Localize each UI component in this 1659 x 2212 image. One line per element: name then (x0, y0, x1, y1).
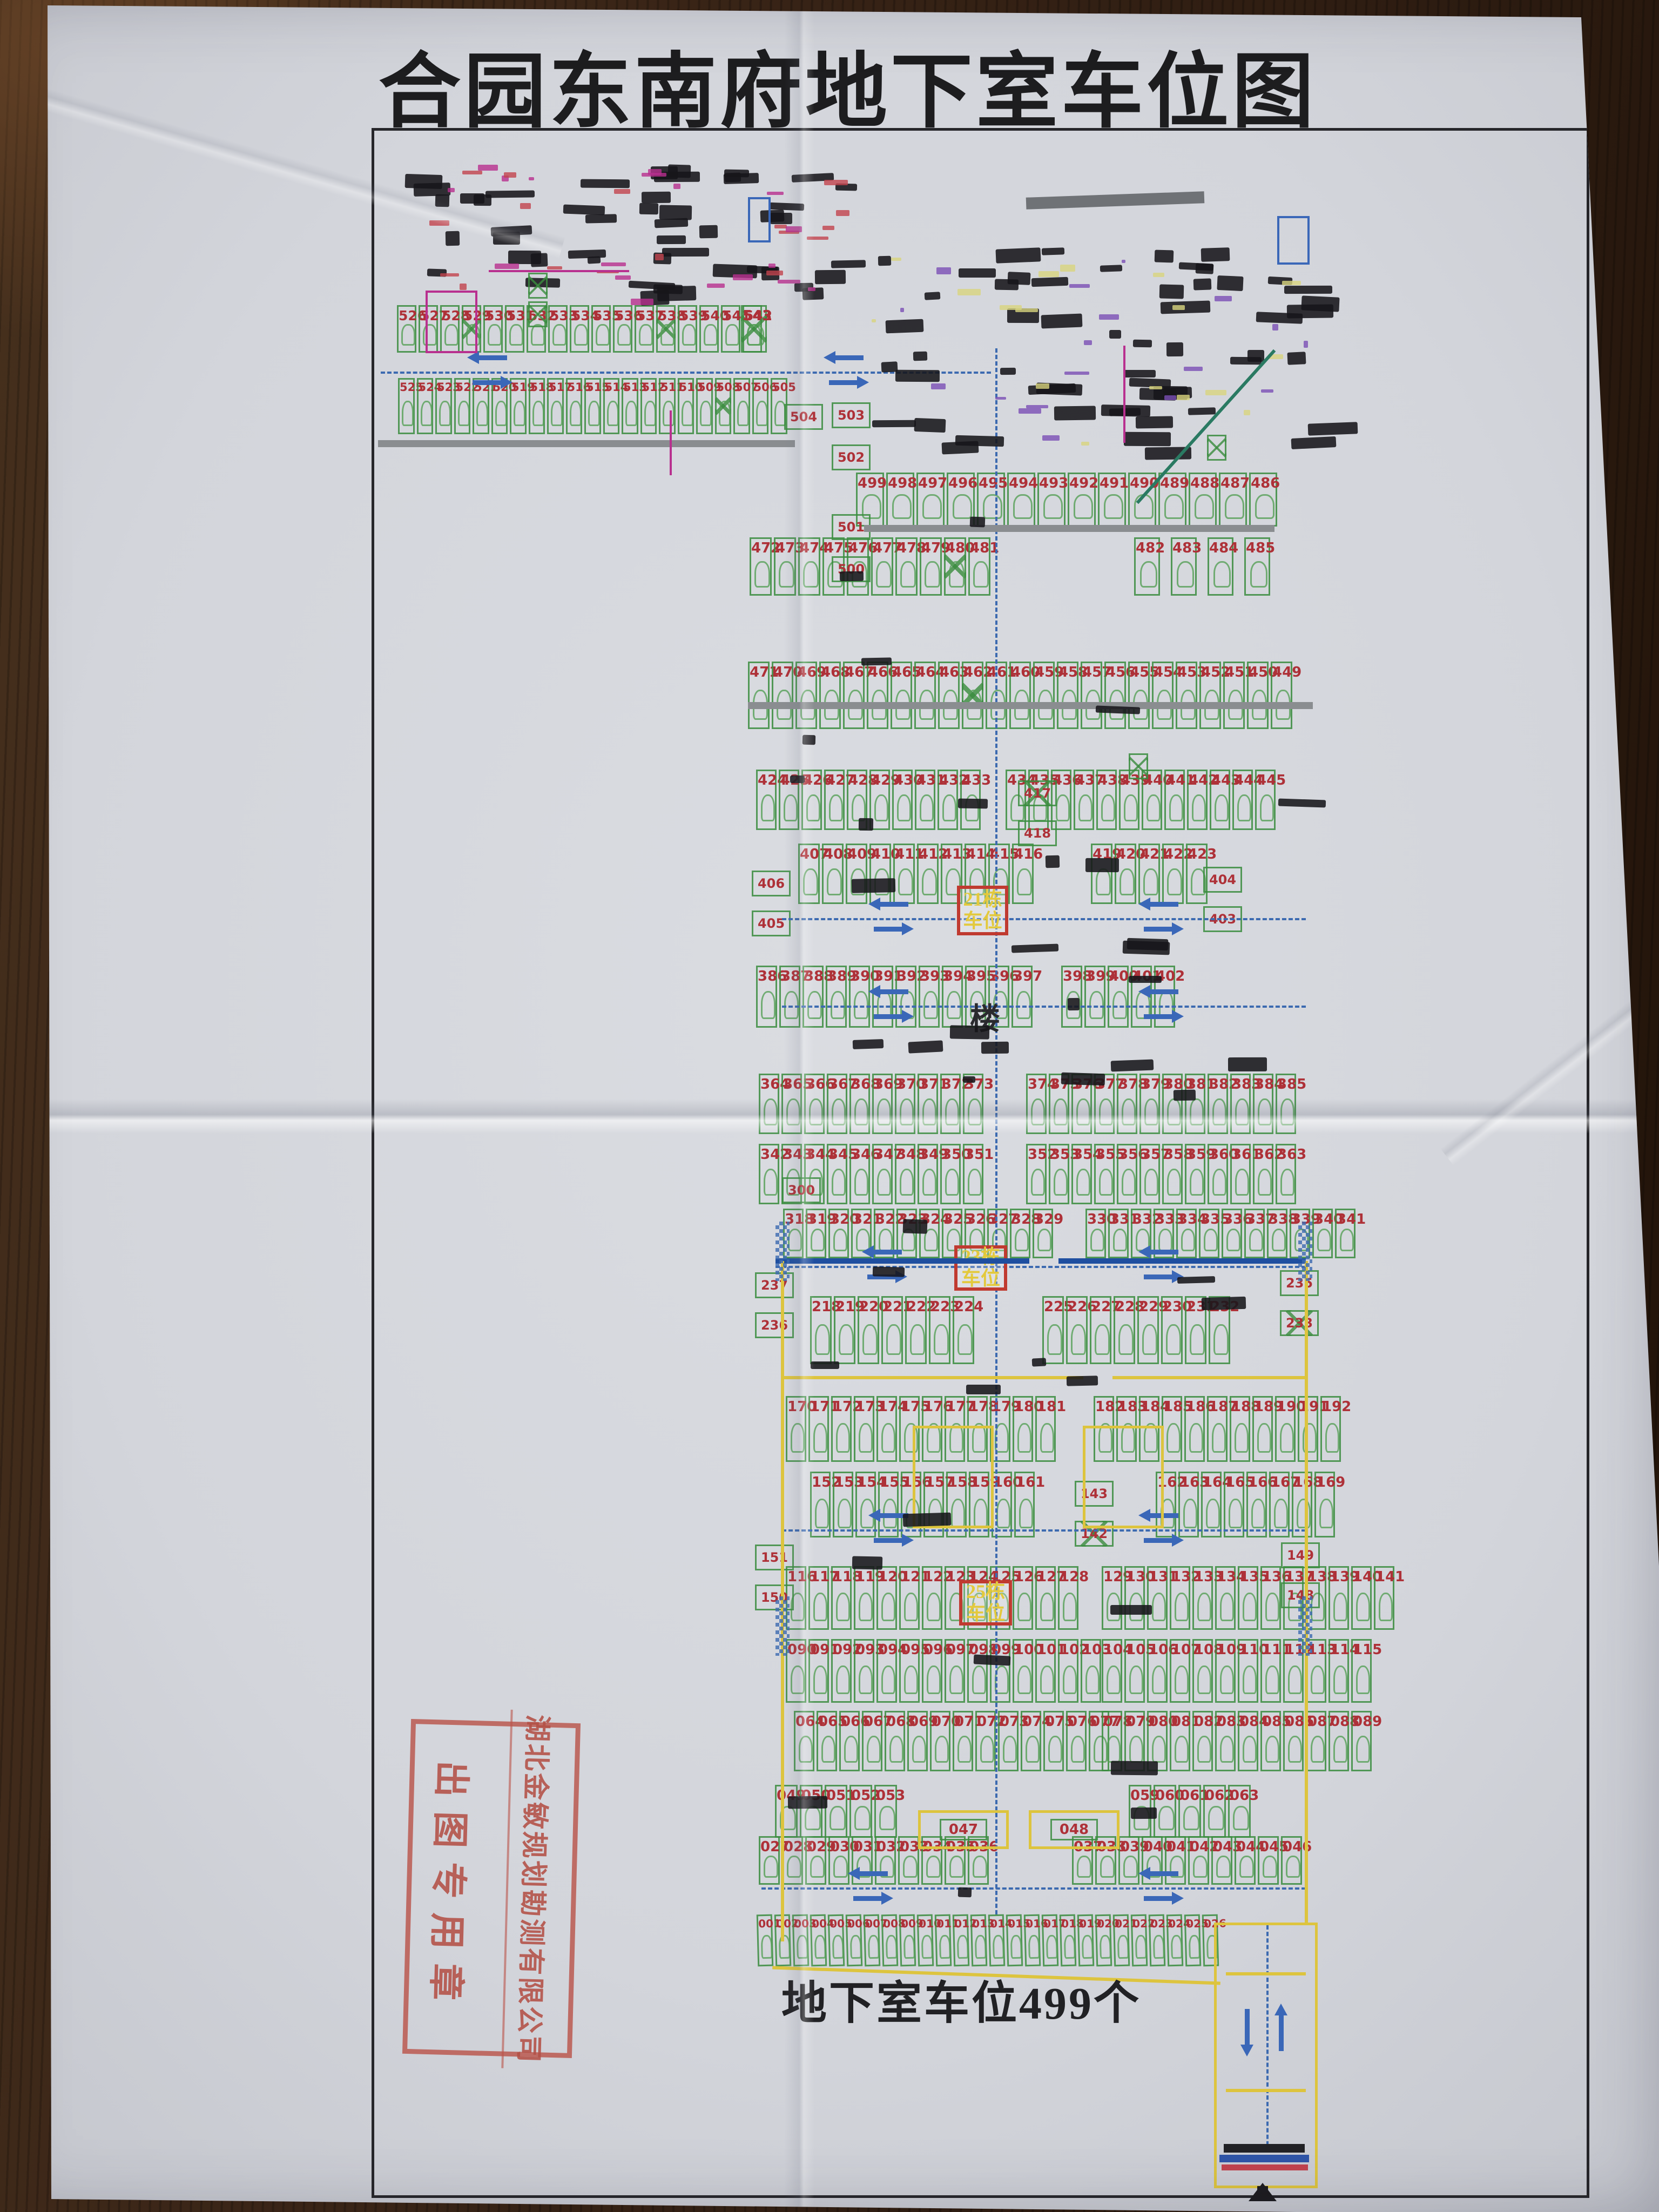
parking-stall: 028 (782, 1836, 803, 1885)
car-icon (1333, 1593, 1347, 1621)
annotation-tick (1060, 265, 1075, 272)
annotation-blob (814, 269, 846, 284)
stall-number: 095 (901, 1643, 918, 1657)
annotation-blob (1228, 1057, 1267, 1071)
car-icon (786, 1098, 800, 1126)
car-icon (1190, 1324, 1205, 1354)
parking-stall: 033 (898, 1836, 919, 1885)
car-icon (854, 1806, 870, 1830)
parking-stall: 422 (1162, 844, 1184, 904)
parking-stall: 008 (881, 1914, 899, 1967)
stall-number: 378 (1118, 1077, 1136, 1091)
car-icon (1071, 1736, 1085, 1763)
annotation-tick (478, 165, 498, 171)
car-icon (945, 1098, 959, 1126)
stall-number: 136 (1262, 1570, 1279, 1584)
car-icon (806, 794, 820, 822)
parking-stall: 405 (752, 911, 791, 936)
parking-stall: 488 (1189, 473, 1217, 527)
parking-stall: 531 (505, 305, 524, 353)
car-icon (1100, 1856, 1115, 1878)
parking-stall: 029 (805, 1836, 826, 1885)
stall-number: 384 (1255, 1077, 1272, 1091)
car-icon (912, 1736, 926, 1763)
parking-stall: 470 (772, 662, 793, 729)
parking-stall: 050 (800, 1785, 822, 1838)
stall-number: 129 (1103, 1570, 1121, 1584)
parking-stall: 108 (1192, 1639, 1213, 1703)
stall-number: 480 (946, 541, 965, 555)
stall-number: 032 (876, 1840, 894, 1854)
car-icon (476, 401, 488, 426)
stall-number: 479 (921, 541, 940, 555)
parking-stall: 365 (781, 1074, 802, 1134)
stall-number: 416 (1014, 847, 1032, 861)
stall-number: 018 (1061, 1918, 1074, 1930)
stall-number: 509 (698, 382, 711, 393)
parking-stall: 417 (1018, 780, 1057, 806)
magenta-line (1123, 346, 1125, 443)
car-icon (1107, 1665, 1121, 1694)
stall-number: 040 (1143, 1840, 1161, 1854)
car-icon (1206, 1499, 1220, 1528)
stall-number: 350 (942, 1148, 959, 1162)
stall-number: 369 (874, 1077, 891, 1091)
parking-stall: 345 (827, 1144, 847, 1204)
stall-number: 182 (1095, 1400, 1112, 1414)
car-icon (1099, 1098, 1113, 1126)
parking-stall: 017 (1042, 1914, 1059, 1967)
annotation-tick (872, 319, 875, 322)
lobby-box: 048 (1029, 1810, 1120, 1849)
stall-number: 518 (530, 382, 544, 393)
annotation-blob (1133, 340, 1152, 347)
car-icon (957, 1736, 972, 1763)
parking-stall: 407 (798, 844, 820, 904)
stall-number: 020 (1097, 1918, 1110, 1930)
parking-stall: 431 (915, 770, 935, 830)
parking-stall: 541 (721, 305, 740, 353)
car-icon (903, 1856, 918, 1878)
parking-stall: 094 (876, 1639, 897, 1703)
stall-number: 329 (1034, 1212, 1051, 1226)
stall-number: 046 (1283, 1840, 1300, 1854)
stall-number: 039 (1120, 1840, 1138, 1854)
car-icon (1356, 1665, 1370, 1694)
parking-stall: 226 (1066, 1296, 1088, 1364)
car-icon (1212, 1098, 1226, 1126)
stall-number: 414 (966, 847, 984, 861)
annotation-blob (1201, 1297, 1245, 1310)
stall-number: 227 (1091, 1300, 1110, 1314)
stall-number: 008 (883, 1918, 896, 1930)
stall-number: 332 (1132, 1212, 1150, 1226)
stall-number: 404 (1205, 873, 1240, 886)
stall-number: 229 (1139, 1300, 1157, 1314)
parking-stall: 104 (1102, 1639, 1122, 1703)
driving-lane (782, 1529, 1306, 1532)
car-icon (910, 1324, 925, 1354)
aisle-wall-line (775, 1258, 1029, 1264)
stall-number: 087 (1307, 1715, 1325, 1729)
car-icon (867, 1736, 881, 1763)
lane-arrow-icon (1144, 1871, 1178, 1876)
car-icon (700, 401, 712, 426)
parking-stall: 110 (1238, 1639, 1258, 1703)
parking-stall: 009 (899, 1914, 916, 1967)
car-icon (827, 868, 842, 896)
lane-arrow-icon (1144, 1538, 1178, 1543)
stall-number: 140 (1353, 1570, 1370, 1584)
car-icon (1171, 1935, 1183, 1959)
car-icon (922, 494, 941, 518)
parking-stall: 384 (1253, 1074, 1273, 1134)
parking-stall: 320 (828, 1209, 849, 1258)
car-icon (704, 324, 717, 346)
stall-number: 326 (966, 1212, 983, 1226)
car-icon (514, 401, 525, 426)
annotation-tick (462, 171, 482, 174)
car-icon (1189, 1935, 1201, 1959)
shaft-outline (748, 197, 771, 242)
parking-stall: 114 (1328, 1639, 1349, 1703)
car-icon (874, 794, 888, 822)
stall-number: 486 (1251, 476, 1276, 490)
lane-arrow-icon (874, 902, 908, 907)
parking-stall: 340 (1312, 1209, 1333, 1258)
stall-number: 116 (787, 1570, 805, 1584)
parking-stall: 355 (1094, 1144, 1115, 1204)
parking-stall: 357 (1139, 1144, 1160, 1204)
car-icon (942, 794, 956, 822)
stall-number: 506 (754, 382, 767, 393)
stall-number: 081 (1171, 1715, 1189, 1729)
parking-stall: 066 (839, 1711, 860, 1771)
car-icon (859, 1423, 873, 1453)
stall-number: 454 (1154, 665, 1172, 679)
parking-stall: 133 (1192, 1566, 1213, 1630)
car-icon (1043, 494, 1062, 518)
stall-number: 030 (830, 1840, 848, 1854)
parking-stall: 127 (1035, 1566, 1056, 1630)
parking-stall: 141 (1374, 1566, 1394, 1630)
car-icon (897, 794, 911, 822)
car-icon (764, 1856, 778, 1878)
parking-stall: 167 (1269, 1472, 1290, 1537)
stall-number: 090 (787, 1643, 805, 1657)
annotation-tick (520, 203, 531, 209)
car-icon (836, 1665, 850, 1694)
parking-stall: 014 (988, 1914, 1006, 1967)
car-icon (761, 991, 775, 1019)
stall-number: 071 (954, 1715, 972, 1729)
lane-arrow-icon (1144, 1014, 1178, 1019)
car-icon (1169, 794, 1183, 822)
parking-stall: 348 (895, 1144, 915, 1204)
car-icon (791, 1665, 805, 1694)
car-icon (1099, 1169, 1113, 1196)
stall-number: 127 (1037, 1570, 1054, 1584)
annotation-tick (778, 280, 800, 283)
parking-stall: 381 (1185, 1074, 1205, 1134)
car-icon (1166, 1324, 1181, 1354)
parking-stall: 185 (1162, 1396, 1182, 1462)
crossed-box (1129, 753, 1148, 779)
annotation-blob (958, 1887, 972, 1897)
annotation-tick (1042, 435, 1060, 441)
car-icon (975, 1935, 987, 1959)
stall-number: 515 (586, 382, 599, 393)
annotation-blob (485, 191, 535, 198)
stall-number: 469 (797, 665, 815, 679)
parking-stall: 052 (849, 1785, 872, 1838)
stall-number: 088 (1330, 1715, 1347, 1729)
parking-stall: 420 (1115, 844, 1136, 904)
car-icon (900, 1169, 914, 1196)
stall-number: 117 (810, 1570, 827, 1584)
stall-number: 067 (864, 1715, 881, 1729)
parking-stall: 219 (834, 1296, 855, 1364)
car-icon (1054, 1169, 1068, 1196)
stall-number: 471 (750, 665, 768, 679)
stall-number: 349 (919, 1148, 936, 1162)
annotation-tick (733, 274, 753, 280)
stall-number: 504 (786, 410, 821, 423)
lane-arrow-icon (874, 927, 908, 932)
stall-number: 085 (1262, 1715, 1279, 1729)
stall-number: 025 (1186, 1918, 1199, 1930)
stall-number: 352 (1028, 1148, 1045, 1162)
annotation-tick (429, 220, 449, 225)
parking-stall: 067 (862, 1711, 882, 1771)
stall-number: 437 (1075, 773, 1092, 787)
car-icon (949, 1856, 964, 1878)
lane-arrow-icon (1144, 1896, 1178, 1901)
car-icon (421, 401, 433, 426)
parking-stall: 480 (944, 537, 966, 596)
lane-arrow-icon (874, 1538, 908, 1543)
lane-arrow-icon (473, 380, 507, 385)
car-icon (879, 1806, 895, 1830)
stall-number: 086 (1285, 1715, 1302, 1729)
parking-stall: 015 (1006, 1914, 1023, 1967)
parking-stall: 136 (1260, 1566, 1281, 1630)
stall-number: 155 (880, 1475, 897, 1489)
stall-number: 024 (1168, 1918, 1181, 1930)
parking-stall: 233 (1280, 1310, 1319, 1336)
parking-stall: 331 (1108, 1209, 1129, 1258)
stall-number: 010 (919, 1918, 932, 1930)
car-icon (1117, 1935, 1129, 1959)
parking-stall: 102 (1058, 1639, 1078, 1703)
parking-stall: 149 (1281, 1542, 1320, 1568)
stall-number: 432 (939, 773, 956, 787)
stall-number: 531 (507, 309, 523, 322)
wall-line (748, 702, 1313, 709)
parking-stall: 071 (953, 1711, 973, 1771)
stall-number: 139 (1330, 1570, 1347, 1584)
car-icon (402, 401, 414, 426)
car-icon (1096, 868, 1111, 896)
stall-number: 154 (857, 1475, 874, 1489)
car-icon (953, 494, 972, 518)
magenta-line (489, 270, 629, 272)
parking-stall: 408 (822, 844, 844, 904)
stall-number: 337 (1246, 1212, 1263, 1226)
stall-number: 178 (969, 1400, 986, 1414)
annotation-blob (1155, 249, 1174, 262)
car-icon (1237, 794, 1251, 822)
car-icon (1124, 794, 1138, 822)
parking-stall: 224 (953, 1296, 974, 1364)
car-icon (1071, 1324, 1086, 1354)
stall-number: 122 (923, 1570, 941, 1584)
annotation-blob (950, 1025, 990, 1039)
stall-number: 421 (1140, 847, 1158, 861)
car-icon (1263, 1856, 1277, 1878)
stall-number: 367 (828, 1077, 846, 1091)
car-icon (1028, 1935, 1040, 1959)
stall-number: 477 (873, 541, 892, 555)
stall-number: 389 (827, 969, 845, 983)
parking-stall: 155 (878, 1472, 899, 1537)
stall-number: 109 (1217, 1643, 1234, 1657)
annotation-blob (1042, 247, 1065, 255)
car-icon (922, 868, 937, 896)
parking-stall: 509 (696, 378, 713, 434)
wall-line (378, 440, 795, 447)
car-icon (787, 1856, 801, 1878)
car-icon (1215, 794, 1229, 822)
stall-number: 007 (865, 1918, 878, 1930)
car-icon (784, 794, 798, 822)
annotation-tick (495, 264, 520, 269)
annotation-blob (1230, 357, 1262, 365)
annotation-tick (614, 189, 630, 194)
car-icon (904, 1665, 918, 1694)
parking-stall: 498 (886, 473, 914, 527)
car-icon (889, 1736, 903, 1763)
parking-stall: 389 (826, 966, 847, 1028)
hatched-column (775, 1222, 790, 1281)
car-icon (1317, 1229, 1331, 1251)
parking-stall: 449 (1271, 662, 1292, 729)
car-icon (1010, 1935, 1022, 1959)
parking-stall: 049 (775, 1785, 798, 1838)
car-icon (1251, 1499, 1265, 1528)
car-icon (859, 1665, 873, 1694)
car-icon (1118, 1324, 1134, 1354)
stall-number: 533 (550, 309, 566, 322)
annotation-blob (725, 172, 741, 182)
stall-number: 456 (1106, 665, 1124, 679)
stall-number: 385 (1277, 1077, 1294, 1091)
car-icon (1104, 494, 1123, 518)
car-icon (881, 1593, 895, 1621)
car-icon (879, 1229, 893, 1251)
stall-number: 179 (992, 1400, 1009, 1414)
annotation-blob (959, 268, 996, 278)
parking-stall: 131 (1147, 1566, 1168, 1630)
parking-stall: 394 (942, 966, 963, 1028)
stall-number: 524 (419, 382, 432, 393)
stall-number: 526 (399, 309, 415, 322)
car-icon (939, 1935, 951, 1959)
annotation-tick (1036, 383, 1049, 389)
parking-stall: 487 (1219, 473, 1247, 527)
car-icon (1100, 1935, 1111, 1959)
annotation-blob (1177, 1276, 1215, 1284)
parking-stall: 352 (1026, 1144, 1047, 1204)
stall-number: 473 (775, 541, 794, 555)
parking-stall: 478 (895, 537, 918, 596)
car-icon (926, 1856, 941, 1878)
stall-number: 445 (1257, 773, 1274, 787)
parking-stall: 472 (750, 537, 772, 596)
annotation-blob (1166, 342, 1184, 356)
annotation-blob (1067, 1375, 1098, 1386)
annotation-blob (895, 370, 940, 382)
parking-stall: 107 (1170, 1639, 1190, 1703)
parking-stall: 517 (547, 378, 564, 434)
car-icon (1243, 1665, 1257, 1694)
stall-number: 322 (875, 1212, 893, 1226)
stall-number: 342 (760, 1148, 778, 1162)
parking-stall: 430 (892, 770, 913, 830)
stall-number: 164 (1203, 1475, 1220, 1489)
annotation-tick (707, 284, 725, 287)
annotation-tick (1099, 314, 1119, 320)
annotation-blob (885, 319, 923, 333)
car-icon (1197, 1593, 1211, 1621)
equipment-room-outline (426, 291, 477, 353)
stall-number: 391 (874, 969, 892, 983)
stall-number: 062 (1205, 1789, 1224, 1803)
parking-stall: 493 (1037, 473, 1065, 527)
stall-number: 120 (878, 1570, 895, 1584)
stall-number: 534 (571, 309, 588, 322)
stall-number: 511 (660, 382, 674, 393)
stall-number: 230 (1163, 1300, 1181, 1314)
parking-stall: 329 (1033, 1209, 1053, 1258)
car-icon (811, 1229, 825, 1251)
zone-boundary (781, 1376, 1083, 1379)
car-icon (1153, 1935, 1165, 1959)
car-icon (852, 794, 866, 822)
stall-number: 135 (1239, 1570, 1257, 1584)
annotation-blob (840, 571, 864, 581)
stall-number: 163 (1180, 1475, 1197, 1489)
annotation-blob (878, 255, 891, 265)
stall-number: 413 (942, 847, 961, 861)
parking-stall: 442 (1187, 770, 1208, 830)
car-icon (1113, 1229, 1127, 1251)
stall-number: 121 (901, 1570, 918, 1584)
parking-stall: 445 (1255, 770, 1276, 830)
annotation-tick (448, 188, 454, 192)
lobby-box: 047 (918, 1810, 1009, 1849)
stall-number: 126 (1014, 1570, 1031, 1584)
parking-stall: 091 (808, 1639, 829, 1703)
car-icon (495, 401, 507, 426)
annotation-blob (881, 362, 898, 373)
stall-number: 166 (1248, 1475, 1265, 1489)
parking-stall: 227 (1090, 1296, 1111, 1364)
car-icon (881, 1423, 895, 1453)
parking-stall: 453 (1176, 662, 1197, 729)
parking-stall: 356 (1117, 1144, 1137, 1204)
parking-stall: 225 (1042, 1296, 1064, 1364)
